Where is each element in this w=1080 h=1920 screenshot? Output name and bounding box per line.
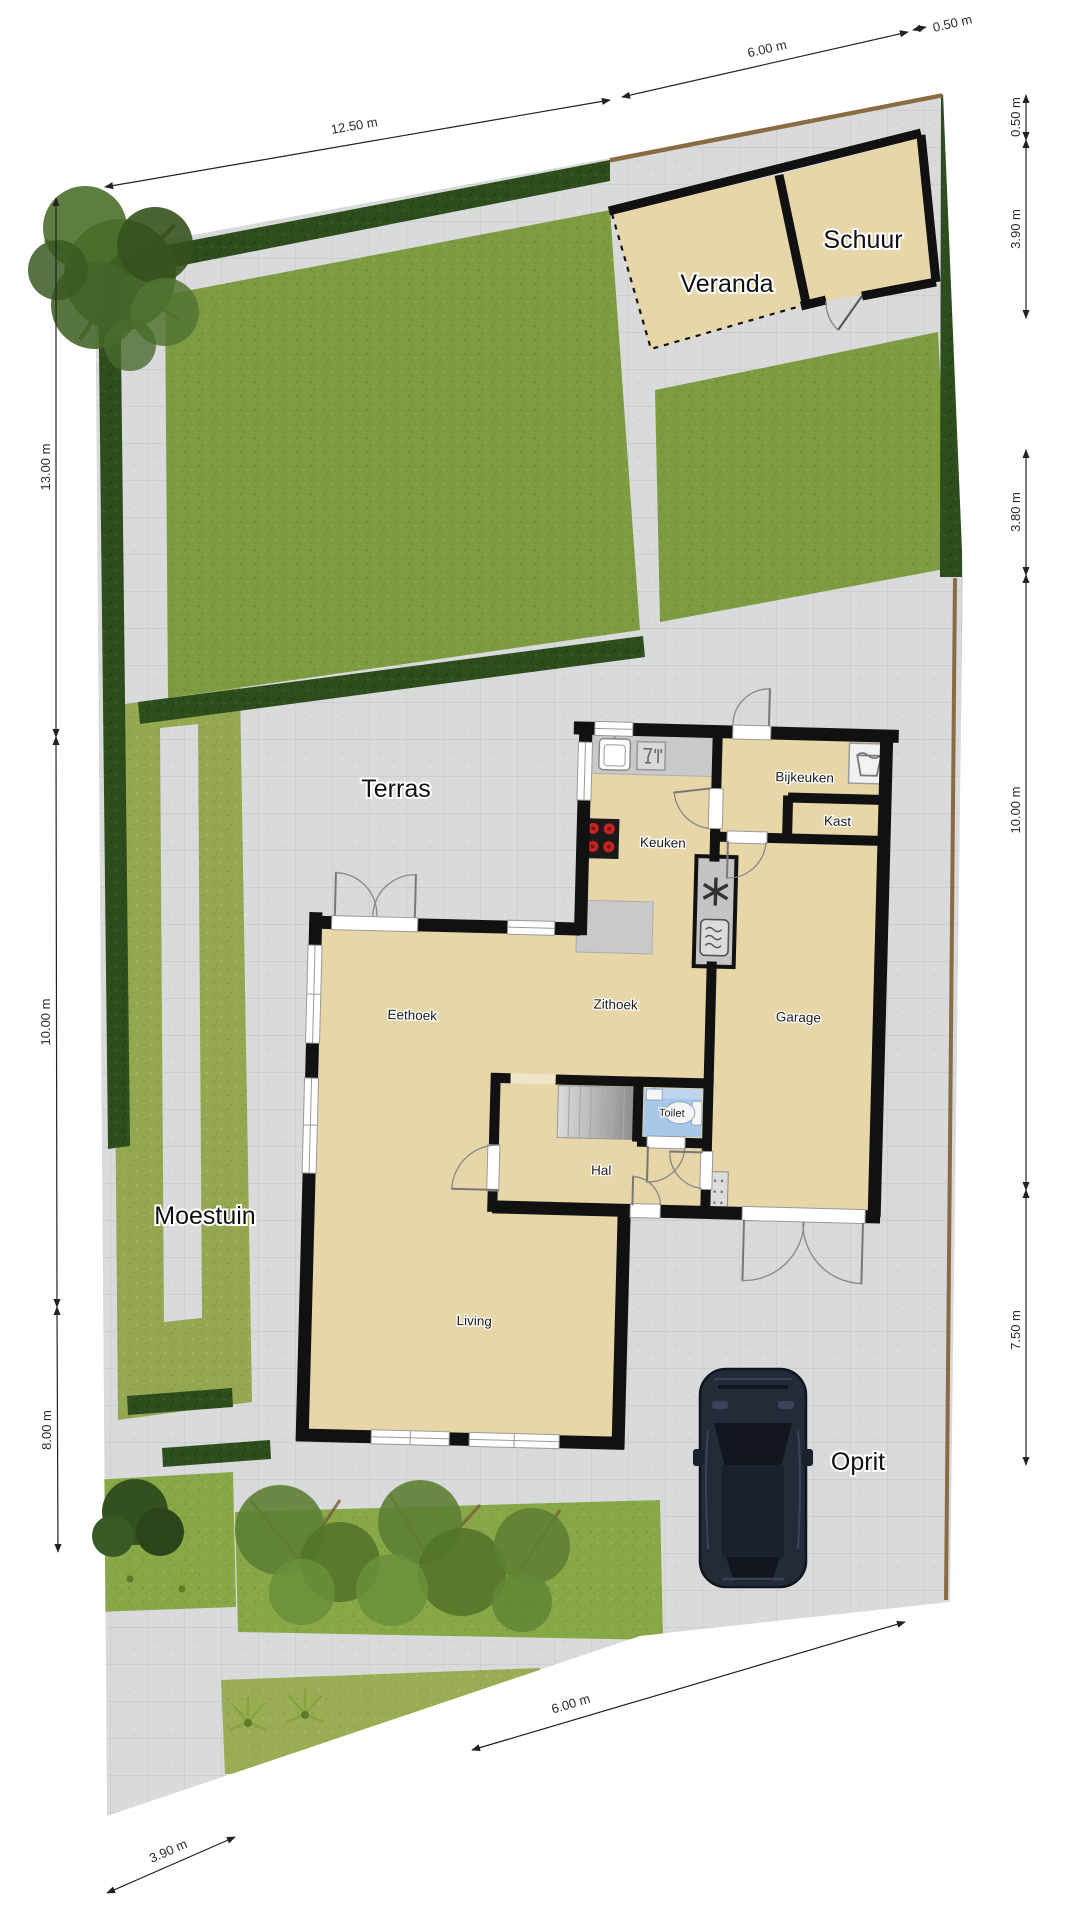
bed-bottom-strip xyxy=(221,1668,545,1774)
dim-right-0-50: 0.50 m xyxy=(1008,97,1023,137)
dim-top-6-00: 6.00 m xyxy=(746,37,788,60)
veranda-label: Veranda xyxy=(680,270,773,298)
room-label-bijkeuken: Bijkeuken xyxy=(775,769,834,786)
window xyxy=(469,1432,559,1448)
staircase xyxy=(557,1086,638,1140)
room-label-kast: Kast xyxy=(824,813,852,829)
room-label-zithoek: Zithoek xyxy=(593,996,638,1012)
window xyxy=(371,1430,449,1446)
dim-right-7-50: 7.50 m xyxy=(1008,1310,1023,1350)
dim-top-0-50: 0.50 m xyxy=(931,11,973,34)
room-label-living: Living xyxy=(456,1313,492,1329)
utility-column xyxy=(694,856,737,967)
dim-right-3-90: 3.90 m xyxy=(1008,209,1023,249)
tree-large xyxy=(28,186,199,371)
dim-top-12-50: 12.50 m xyxy=(330,114,379,137)
car xyxy=(693,1369,813,1587)
room-label-eethoek: Eethoek xyxy=(387,1007,437,1023)
dim-left-13-00: 13.00 m xyxy=(38,444,53,491)
terras-label: Terras xyxy=(361,775,430,803)
boiler-icon xyxy=(700,919,729,956)
site-plan-page: Veranda Schuur xyxy=(0,0,1080,1920)
window xyxy=(302,1078,318,1173)
hedge-right xyxy=(940,92,963,577)
dim-right-10-00: 10.00 m xyxy=(1008,787,1023,834)
sink-icon xyxy=(599,734,631,771)
schuur-label: Schuur xyxy=(823,226,902,254)
window xyxy=(595,721,633,736)
room-label-keuken: Keuken xyxy=(640,835,686,851)
dim-left-8-00: 8.00 m xyxy=(39,1410,54,1450)
window xyxy=(577,742,593,800)
moestuin-path xyxy=(160,724,202,1322)
oprit-label: Oprit xyxy=(831,1448,885,1476)
dim-bottom-3-90: 3.90 m xyxy=(147,1836,189,1866)
window xyxy=(507,920,554,935)
moestuin-label: Moestuin xyxy=(154,1202,255,1230)
dim-bottom-6-00: 6.00 m xyxy=(550,1691,592,1717)
dim-left-10-00: 10.00 m xyxy=(38,999,53,1046)
room-label-hal: Hal xyxy=(591,1162,612,1178)
dim-right-3-80: 3.80 m xyxy=(1008,492,1023,532)
window xyxy=(306,945,323,1043)
lawn-main xyxy=(165,210,640,698)
site-plan: Veranda Schuur xyxy=(0,0,1080,1920)
dishwasher-icon xyxy=(637,742,666,771)
room-label-garage: Garage xyxy=(776,1009,821,1025)
room-label-toilet: Toilet xyxy=(659,1107,685,1120)
